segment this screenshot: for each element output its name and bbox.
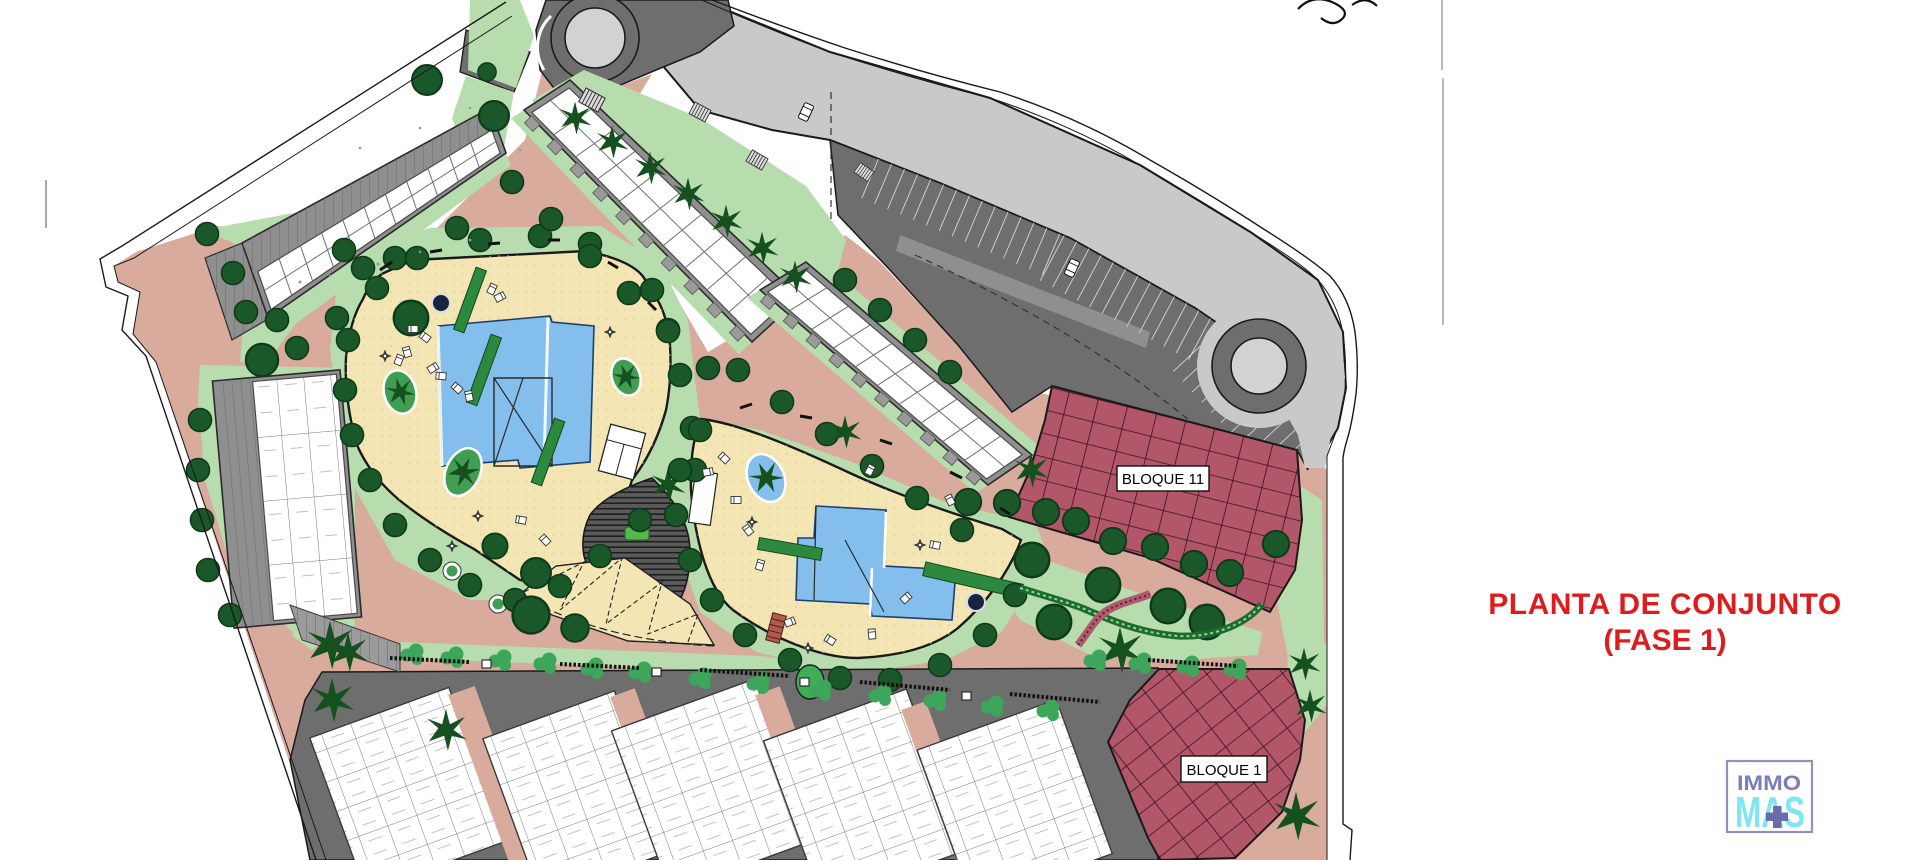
svg-text:BLOQUE 11: BLOQUE 11: [1122, 471, 1204, 488]
svg-text:(FASE 1): (FASE 1): [1603, 624, 1726, 657]
svg-text:BLOQUE 1: BLOQUE 1: [1186, 762, 1261, 779]
svg-text:PLANTA DE CONJUNTO: PLANTA DE CONJUNTO: [1488, 588, 1841, 621]
